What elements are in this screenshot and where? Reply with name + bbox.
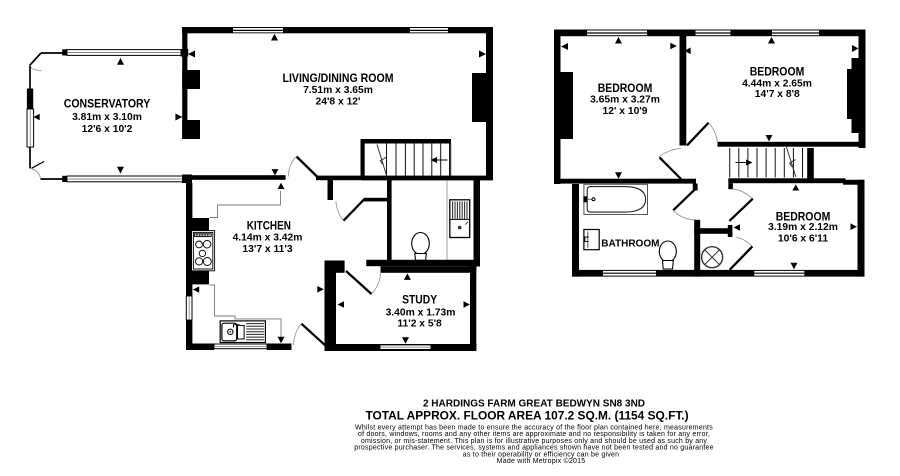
svg-text:BATHROOM: BATHROOM	[601, 238, 659, 249]
svg-text:11'2 x 5'8: 11'2 x 5'8	[397, 318, 442, 329]
svg-text:TOTAL APPROX. FLOOR AREA 107.2: TOTAL APPROX. FLOOR AREA 107.2 SQ.M. (11…	[365, 408, 688, 422]
svg-text:BEDROOM: BEDROOM	[598, 81, 653, 95]
svg-text:3.19m x 2.12m: 3.19m x 2.12m	[768, 222, 838, 233]
svg-text:7.51m x 3.65m: 7.51m x 3.65m	[303, 85, 373, 96]
svg-text:13'7 x 11'3: 13'7 x 11'3	[242, 244, 292, 255]
svg-text:4.44m x 2.65m: 4.44m x 2.65m	[742, 79, 812, 90]
svg-text:24'8 x 12': 24'8 x 12'	[316, 96, 361, 107]
svg-text:KITCHEN: KITCHEN	[247, 218, 291, 232]
svg-text:3.40m x 1.73m: 3.40m x 1.73m	[386, 307, 456, 318]
svg-text:10'6 x 6'11: 10'6 x 6'11	[778, 233, 828, 244]
svg-text:3.81m x 3.10m: 3.81m x 3.10m	[72, 112, 142, 123]
svg-text:LIVING/DINING ROOM: LIVING/DINING ROOM	[283, 71, 394, 85]
svg-text:Made with Metropix ©2015: Made with Metropix ©2015	[497, 457, 586, 465]
svg-text:14'7 x 8'8: 14'7 x 8'8	[755, 89, 800, 100]
svg-text:12' x 10'9: 12' x 10'9	[603, 106, 648, 117]
svg-text:3.65m x 3.27m: 3.65m x 3.27m	[590, 95, 660, 106]
svg-text:BEDROOM: BEDROOM	[776, 209, 831, 223]
svg-text:CONSERVATORY: CONSERVATORY	[64, 97, 151, 111]
svg-text:BEDROOM: BEDROOM	[750, 64, 805, 78]
svg-text:STUDY: STUDY	[402, 293, 437, 307]
svg-text:4.14m x 3.42m: 4.14m x 3.42m	[233, 232, 303, 243]
svg-text:12'6 x 10'2: 12'6 x 10'2	[82, 124, 133, 135]
